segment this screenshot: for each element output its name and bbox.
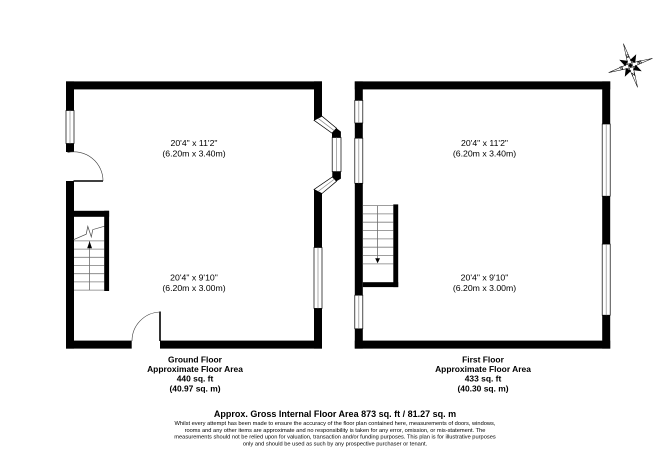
svg-text:20'4" x 11'2": 20'4" x 11'2" [461, 138, 508, 148]
svg-text:Approximate Floor Area: Approximate Floor Area [147, 364, 243, 374]
svg-text:(6.20m x 3.00m): (6.20m x 3.00m) [453, 283, 516, 293]
svg-text:measurements should not be rel: measurements should not be relied upon f… [174, 435, 496, 441]
svg-text:Approx. Gross Internal Floor A: Approx. Gross Internal Floor Area 873 sq… [214, 409, 456, 419]
svg-text:(40.97 sq. m): (40.97 sq. m) [169, 383, 220, 393]
svg-text:440 sq. ft: 440 sq. ft [177, 374, 214, 384]
svg-text:(6.20m x 3.40m): (6.20m x 3.40m) [453, 149, 516, 159]
svg-text:Ground Floor: Ground Floor [168, 354, 223, 364]
svg-text:only and should be used as suc: only and should be used as such by any p… [243, 441, 428, 447]
svg-text:rooms and any other items are: rooms and any other items are approximat… [185, 428, 486, 434]
svg-text:20'4" x 9'10": 20'4" x 9'10" [461, 272, 509, 282]
svg-text:Approximate Floor Area: Approximate Floor Area [435, 364, 531, 374]
svg-text:433 sq. ft: 433 sq. ft [465, 374, 502, 384]
svg-text:(6.20m x 3.00m): (6.20m x 3.00m) [162, 283, 225, 293]
svg-text:20'4" x 9'10": 20'4" x 9'10" [170, 272, 218, 282]
svg-text:Whilst every attempt has been: Whilst every attempt has been made to en… [175, 421, 496, 427]
svg-text:(40.30 sq. m): (40.30 sq. m) [457, 383, 508, 393]
svg-text:(6.20m x 3.40m): (6.20m x 3.40m) [162, 149, 225, 159]
svg-text:First Floor: First Floor [462, 354, 504, 364]
svg-text:20'4" x 11'2": 20'4" x 11'2" [171, 138, 218, 148]
